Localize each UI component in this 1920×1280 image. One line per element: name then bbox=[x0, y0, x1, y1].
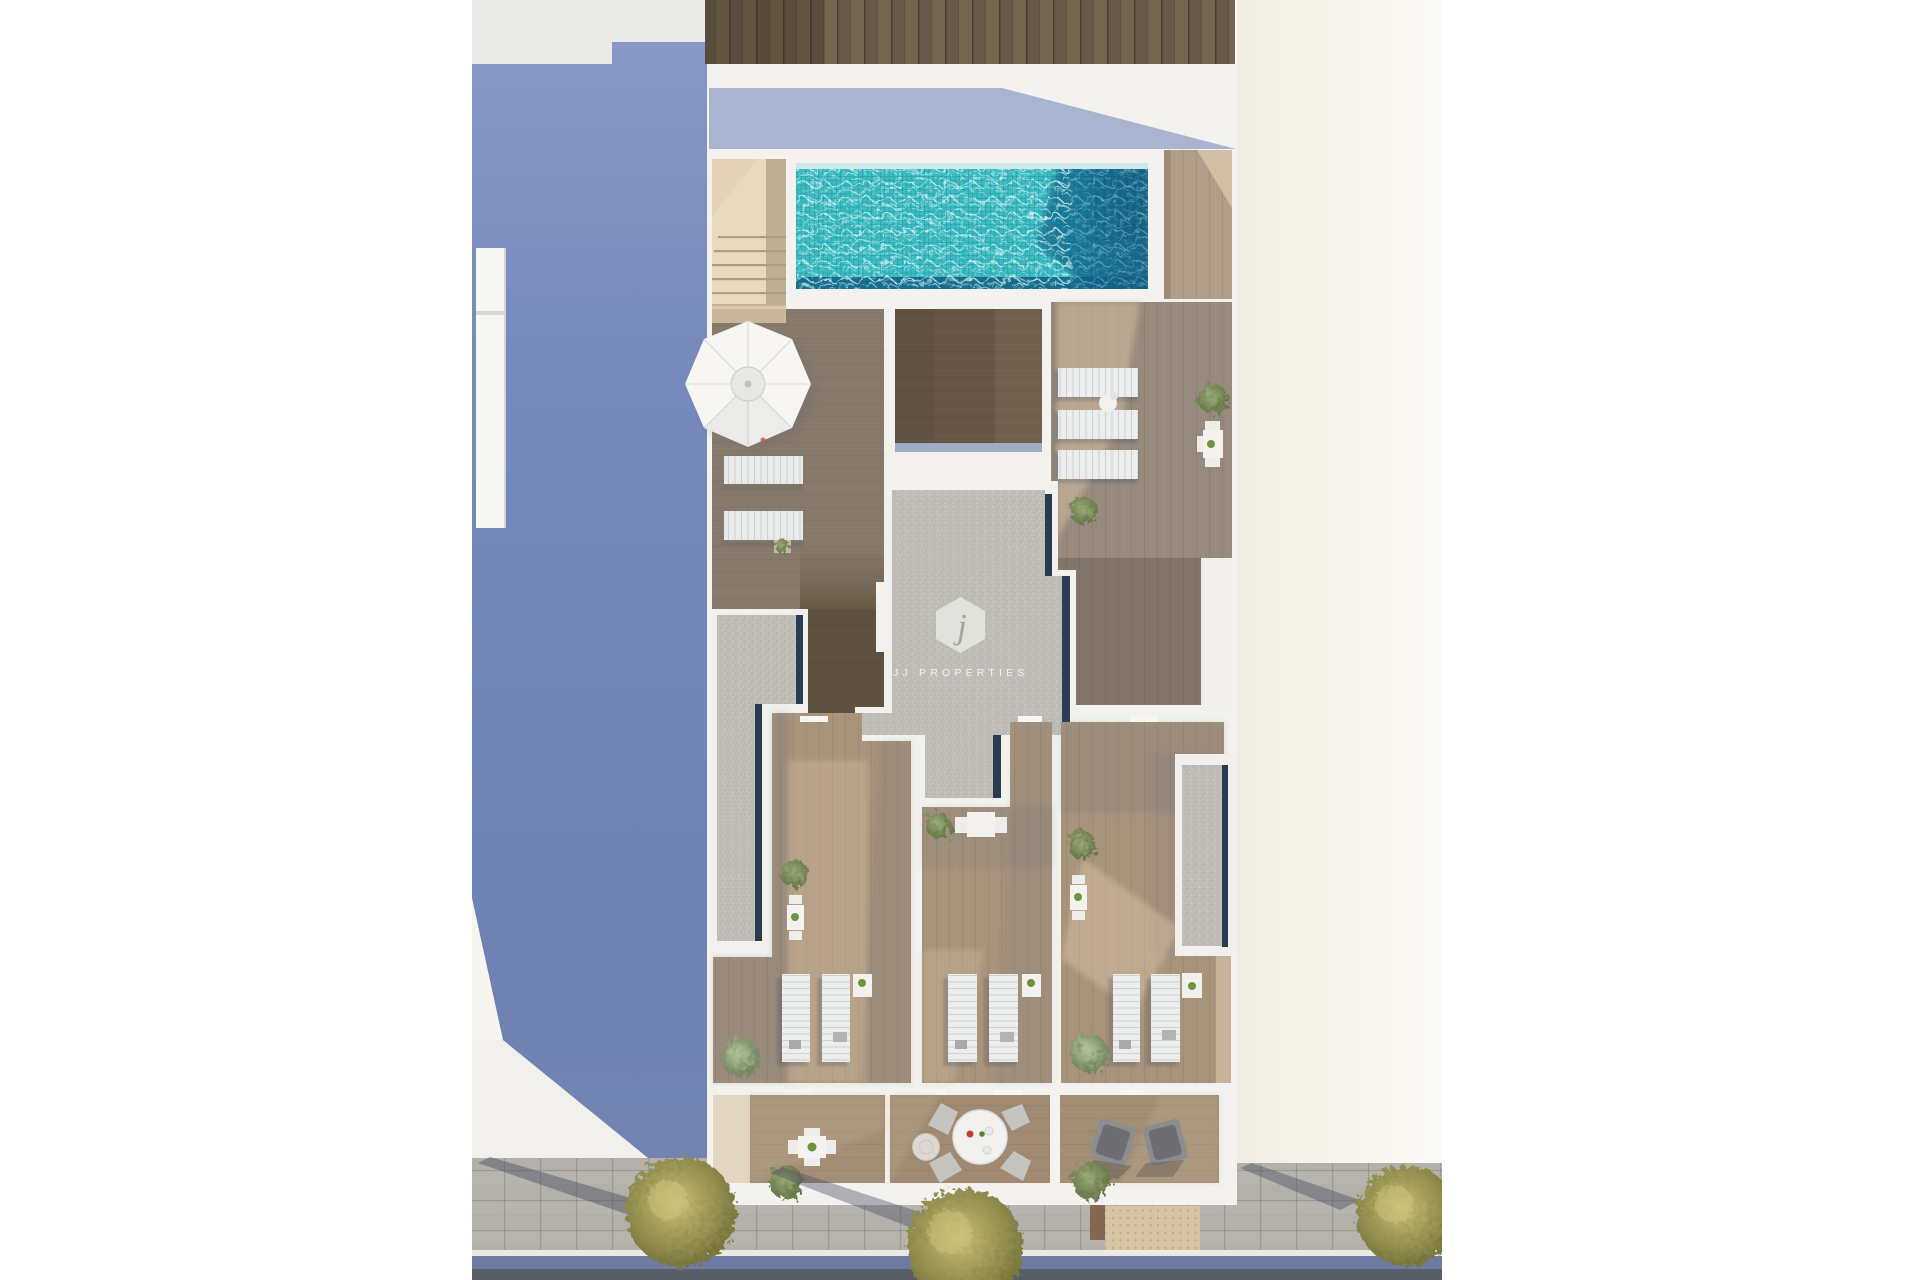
svg-text:R E A L E S T A T E: R E A L E S T A T E bbox=[930, 682, 1007, 687]
svg-text:JJ PROPERTIES: JJ PROPERTIES bbox=[893, 667, 1029, 679]
